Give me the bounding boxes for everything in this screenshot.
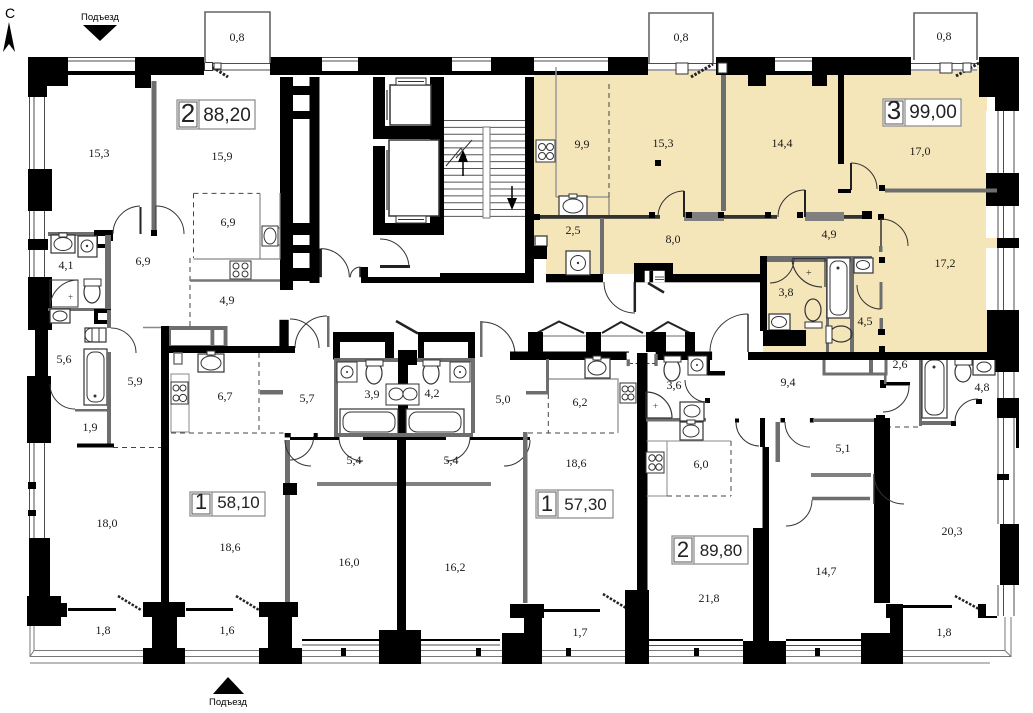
svg-text:2,6: 2,6 [893,357,908,371]
svg-text:+: + [68,292,73,302]
svg-text:57,30: 57,30 [564,495,607,514]
svg-text:18,6: 18,6 [566,456,587,470]
svg-text:0,8: 0,8 [937,29,952,43]
svg-text:1: 1 [541,491,553,516]
svg-text:4,9: 4,9 [220,293,235,307]
svg-text:89,80: 89,80 [700,541,743,560]
svg-text:9,9: 9,9 [575,137,590,151]
svg-text:3: 3 [887,95,901,125]
svg-text:17,0: 17,0 [910,144,931,158]
svg-text:5,4: 5,4 [444,453,459,467]
svg-text:4,1: 4,1 [59,258,74,272]
svg-text:С: С [5,5,15,21]
svg-text:4,8: 4,8 [975,380,990,394]
svg-text:Подъезд: Подъезд [81,12,119,23]
svg-text:5,7: 5,7 [300,391,315,405]
svg-text:14,4: 14,4 [772,136,793,150]
svg-text:Подъезд: Подъезд [209,697,247,708]
svg-text:3,9: 3,9 [365,387,380,401]
svg-text:15,9: 15,9 [212,149,233,163]
svg-text:4,9: 4,9 [822,227,837,241]
svg-text:1,8: 1,8 [937,625,952,639]
svg-text:2: 2 [677,537,689,562]
svg-text:0,8: 0,8 [674,30,689,44]
svg-text:8,0: 8,0 [666,232,681,246]
svg-text:14,7: 14,7 [816,564,837,578]
svg-text:5,6: 5,6 [57,352,72,366]
svg-text:21,8: 21,8 [699,591,720,605]
svg-text:5,4: 5,4 [347,453,362,467]
svg-text:5,9: 5,9 [128,374,143,388]
svg-text:20,3: 20,3 [942,524,963,538]
svg-text:9,4: 9,4 [781,375,796,389]
svg-text:18,0: 18,0 [97,516,118,530]
svg-text:16,2: 16,2 [445,560,466,574]
svg-text:1,9: 1,9 [83,420,98,434]
svg-text:99,00: 99,00 [909,102,957,123]
svg-text:18,6: 18,6 [220,540,241,554]
svg-text:6,9: 6,9 [221,215,236,229]
svg-text:+: + [653,401,658,411]
svg-text:0,8: 0,8 [230,30,245,44]
svg-text:15,3: 15,3 [89,146,110,160]
svg-text:4,5: 4,5 [858,314,873,328]
svg-text:1,6: 1,6 [220,623,235,637]
svg-text:1,8: 1,8 [96,623,111,637]
svg-text:1: 1 [195,489,207,514]
svg-text:6,0: 6,0 [694,457,709,471]
svg-text:17,2: 17,2 [935,256,956,270]
svg-text:2,5: 2,5 [566,223,581,237]
svg-text:2: 2 [181,98,195,128]
svg-text:16,0: 16,0 [339,555,360,569]
svg-text:88,20: 88,20 [203,105,251,126]
svg-text:6,9: 6,9 [136,254,151,268]
svg-text:15,3: 15,3 [653,136,674,150]
svg-text:4,2: 4,2 [425,386,440,400]
svg-text:3,6: 3,6 [667,378,682,392]
svg-text:5,1: 5,1 [836,441,851,455]
svg-text:3,8: 3,8 [779,285,794,299]
svg-text:1,7: 1,7 [573,625,588,639]
svg-text:58,10: 58,10 [217,493,260,512]
svg-text:6,2: 6,2 [573,395,588,409]
svg-text:+: + [806,268,812,279]
svg-text:5,0: 5,0 [496,392,511,406]
svg-text:6,7: 6,7 [218,389,233,403]
